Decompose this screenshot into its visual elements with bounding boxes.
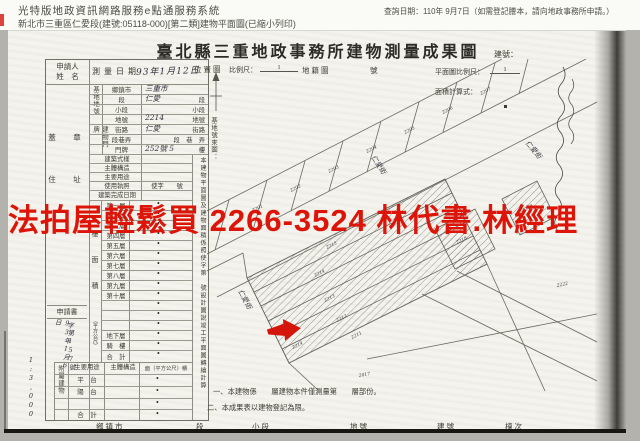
survey-date-value: 93年1月12日	[136, 63, 200, 78]
area-dot: •	[157, 269, 160, 278]
rule-line	[46, 84, 89, 85]
note-2: 二、本成果表以建物登記為限。	[207, 403, 309, 413]
screenshot-root: 光特版地政資訊網路服務e點通服務系統 查詢日期：110年 9月7日（如需登記謄本…	[0, 0, 640, 441]
applicant-line1: 申請人	[46, 62, 89, 72]
parcel-number: 2207	[478, 86, 492, 97]
scan-bottom-edge	[4, 429, 626, 433]
row-label: 鄉鎮市	[102, 84, 141, 94]
annex-label: 陽 台	[70, 386, 104, 396]
area-dot: •	[156, 409, 159, 418]
street-label: 仁愛街	[369, 154, 388, 177]
area-dot: •	[157, 259, 160, 268]
parcel-number: 2017	[357, 371, 370, 379]
seal-label: 蓋 章	[48, 132, 86, 143]
floor-label: 騎 樓	[101, 341, 131, 350]
survey-form: 申請人 姓 名 測量日期 93年1月12日 基地地號 鄉鎮市 三重市 段 仁愛 …	[45, 59, 209, 421]
area-dot: •	[157, 299, 160, 308]
floor-label: 第七層	[101, 261, 131, 270]
row-suffix: 段 巷 弄	[174, 135, 205, 144]
area-dot: •	[157, 249, 160, 258]
floor-label: 合 計	[101, 352, 131, 361]
application-label: 申請書	[47, 305, 87, 319]
floor-label: 地下層	[101, 331, 131, 340]
row-value: 252號 5	[145, 143, 174, 154]
row-value: 仁愛	[145, 123, 160, 134]
row-value: 2214	[145, 113, 164, 122]
area-dot: •	[157, 309, 160, 318]
area-dot: •	[157, 339, 160, 348]
annex-header: 面（平方公尺）積	[140, 364, 192, 372]
row-label: 段巷弄	[102, 134, 141, 144]
row-suffix: 樓	[199, 145, 205, 154]
watermark-text: 法拍屋輕鬆買 2266-3524 林代書.林經理	[8, 195, 640, 240]
scan-edge-line	[4, 331, 6, 433]
parcel-number: 2205	[402, 125, 416, 136]
query-date: 查詢日期：110年 9月7日（如需登記謄本，請向地政事務所申請。）	[384, 6, 614, 17]
system-title: 光特版地政資訊網路服務e點通服務系統	[18, 3, 220, 18]
floor-area-unit-label: （平方公尺）	[91, 318, 98, 362]
row-label: 段	[102, 94, 141, 104]
row-value: 使字 號	[144, 181, 190, 190]
parcel-number: 2203	[326, 164, 340, 175]
scale-handwritten: 1:3,000	[27, 356, 35, 418]
row-label: 門牌	[102, 144, 141, 154]
street-label: 仁愛街	[523, 139, 543, 161]
area-dot: •	[157, 329, 160, 338]
row-label: 使用執照	[92, 181, 142, 190]
address-label: 住 址	[48, 174, 86, 185]
applicant-label: 申請人 姓 名	[46, 62, 89, 82]
row-suffix: 段	[199, 95, 205, 104]
row-label: 街路	[102, 124, 141, 134]
row-label: 主要用途	[92, 172, 142, 181]
area-dot: •	[157, 349, 160, 358]
row-label: 主體構造	[92, 163, 142, 172]
floor-label: 第十層	[101, 291, 131, 300]
row-value: 仁愛	[145, 93, 160, 104]
annex-header: 主要用途	[70, 362, 104, 371]
annex-row-total: 合 計 •	[54, 409, 192, 420]
annex-label: 合 計	[70, 409, 104, 419]
floor-label: 第五層	[101, 241, 131, 250]
area-dot: •	[157, 279, 160, 288]
row-label: 建築式樣	[92, 154, 142, 163]
row-suffix: 地號	[192, 115, 205, 124]
area-dot: •	[157, 289, 160, 298]
handwritten-margin-note	[569, 79, 574, 144]
area-dot: •	[156, 386, 159, 395]
floor-label: 第九層	[101, 281, 131, 290]
annex-label: 平 台	[70, 374, 104, 384]
row-suffix: 小段	[192, 105, 205, 114]
area-dot: •	[157, 239, 160, 248]
row-label: 地號	[102, 114, 141, 124]
map-point-marker	[504, 105, 507, 108]
parcel-number: 2222	[555, 281, 569, 289]
row-suffix: 街路	[192, 125, 205, 134]
area-dot: •	[157, 319, 160, 328]
parcel-number: 2206	[440, 105, 454, 116]
area-dot: •	[156, 398, 159, 407]
survey-date-label: 測量日期	[92, 66, 140, 77]
street-label: 仁愛街	[236, 288, 253, 311]
parcel-number: 2202	[288, 183, 302, 194]
area-dot: •	[156, 374, 159, 383]
annex-header: 主體構造	[106, 362, 140, 371]
applicant-line2: 姓 名	[46, 72, 89, 82]
red-edge-mark	[0, 14, 4, 26]
system-header: 光特版地政資訊網路服務e點通服務系統 查詢日期：110年 9月7日（如需登記謄本…	[0, 0, 640, 30]
north-arrow	[210, 72, 222, 111]
floor-label: 第六層	[101, 251, 131, 260]
floor-area-group-label: 樓 面 積	[90, 230, 100, 322]
note-1: 一、本建物係 層建物本件僅測量第 層部份。	[213, 387, 381, 397]
row-label: 小段	[102, 104, 141, 114]
floor-label: 第八層	[101, 271, 131, 280]
document-line: 新北市三重區仁愛段(建號:05118-000)[第二類]建物平面圖(已縮小列印)	[18, 17, 296, 30]
